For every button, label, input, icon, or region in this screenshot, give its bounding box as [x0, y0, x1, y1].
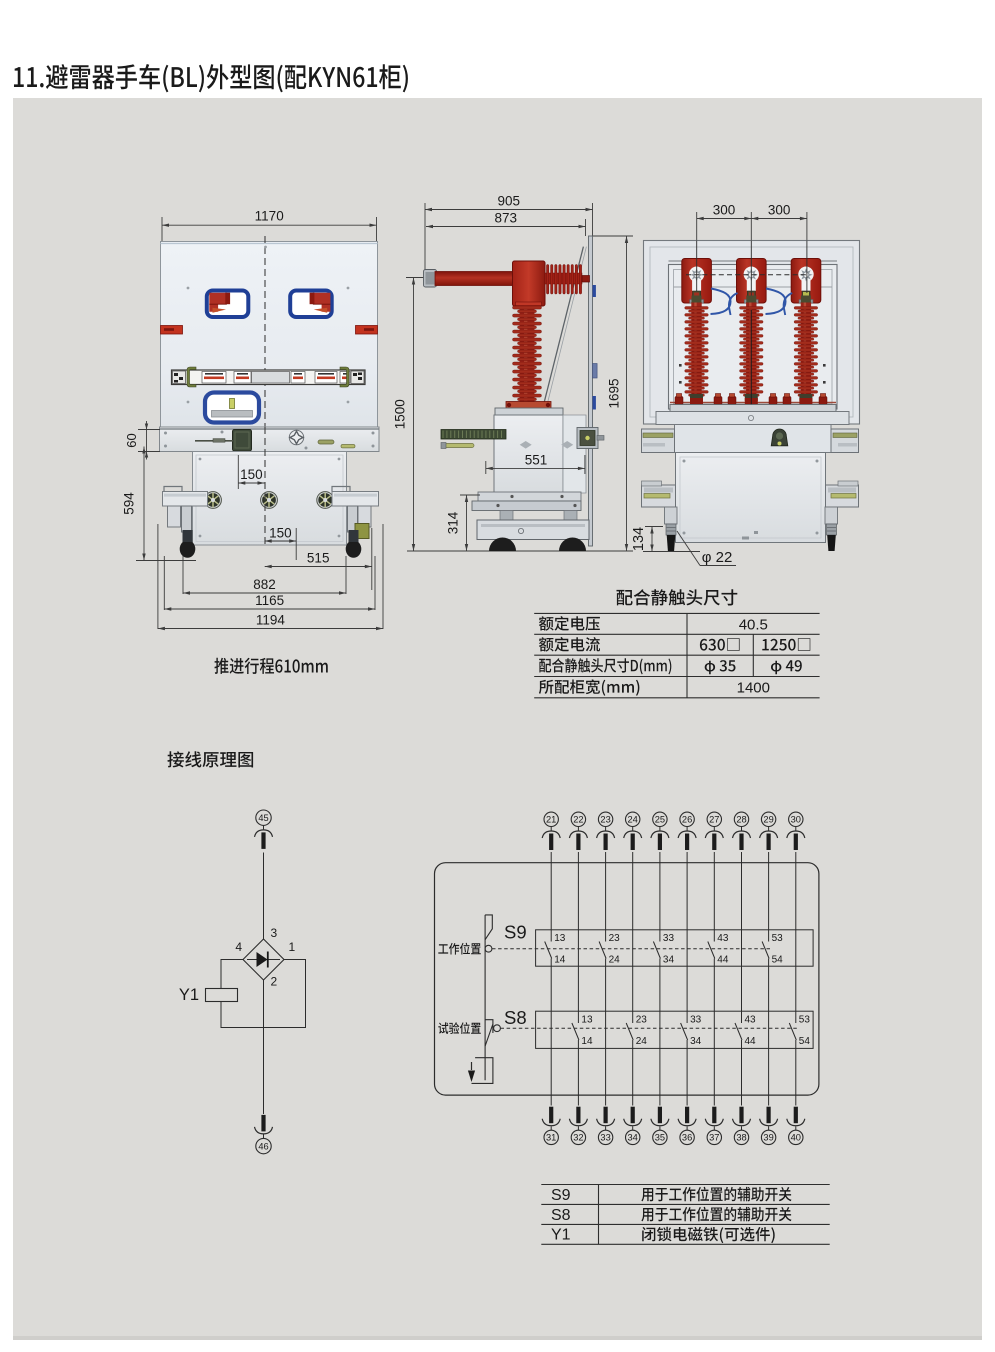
svg-text:30: 30 [791, 815, 801, 825]
svg-text:2: 2 [271, 975, 278, 989]
svg-text:34: 34 [628, 1133, 638, 1143]
svg-text:24: 24 [609, 955, 621, 966]
svg-text:53: 53 [772, 933, 784, 944]
svg-text:28: 28 [736, 815, 746, 825]
svg-text:S8: S8 [504, 1007, 527, 1028]
svg-text:25: 25 [655, 815, 665, 825]
svg-text:134: 134 [631, 527, 647, 551]
svg-text:1194: 1194 [256, 613, 286, 628]
svg-text:43: 43 [717, 933, 729, 944]
svg-text:39: 39 [763, 1133, 773, 1143]
svg-text:1170: 1170 [255, 209, 284, 224]
svg-text:1: 1 [289, 940, 296, 954]
svg-text:31: 31 [546, 1133, 556, 1143]
svg-text:24: 24 [636, 1036, 648, 1047]
svg-text:S8: S8 [551, 1207, 571, 1224]
svg-text:36: 36 [682, 1133, 692, 1143]
svg-text:150: 150 [269, 526, 292, 541]
svg-text:905: 905 [498, 194, 521, 209]
svg-text:40: 40 [791, 1133, 801, 1143]
svg-text:33: 33 [663, 933, 675, 944]
svg-text:S9: S9 [504, 922, 527, 943]
svg-text:4: 4 [235, 940, 242, 954]
svg-text:Y1: Y1 [179, 986, 199, 1004]
svg-text:13: 13 [554, 933, 566, 944]
svg-text:23: 23 [600, 815, 610, 825]
svg-text:882: 882 [253, 577, 276, 592]
svg-text:1400: 1400 [737, 680, 770, 697]
svg-text:φ 22: φ 22 [702, 549, 733, 566]
svg-text:38: 38 [736, 1133, 746, 1143]
svg-text:1165: 1165 [255, 593, 284, 608]
svg-text:29: 29 [763, 815, 773, 825]
svg-text:26: 26 [682, 815, 692, 825]
svg-text:22: 22 [573, 815, 583, 825]
svg-text:37: 37 [709, 1133, 719, 1143]
svg-text:300: 300 [768, 203, 791, 218]
svg-text:60: 60 [124, 433, 139, 447]
svg-text:35: 35 [655, 1133, 665, 1143]
svg-text:43: 43 [745, 1015, 757, 1026]
svg-text:33: 33 [690, 1015, 702, 1026]
svg-text:33: 33 [600, 1133, 610, 1143]
svg-text:1500: 1500 [393, 399, 408, 429]
svg-text:14: 14 [581, 1036, 593, 1047]
svg-text:54: 54 [799, 1036, 811, 1047]
svg-text:Y1: Y1 [551, 1227, 571, 1244]
svg-text:44: 44 [717, 955, 729, 966]
svg-text:300: 300 [713, 203, 736, 218]
svg-text:53: 53 [799, 1015, 811, 1026]
svg-text:14: 14 [554, 955, 566, 966]
svg-text:40.5: 40.5 [739, 616, 768, 633]
svg-text:34: 34 [663, 955, 675, 966]
svg-text:21: 21 [546, 815, 556, 825]
svg-text:23: 23 [636, 1015, 648, 1026]
svg-text:32: 32 [573, 1133, 583, 1143]
svg-text:1695: 1695 [607, 378, 622, 408]
svg-text:23: 23 [609, 933, 621, 944]
svg-text:150: 150 [240, 467, 263, 482]
svg-text:873: 873 [495, 211, 518, 226]
svg-text:314: 314 [446, 511, 461, 534]
svg-text:3: 3 [271, 926, 278, 940]
svg-text:27: 27 [709, 815, 719, 825]
svg-text:54: 54 [772, 955, 784, 966]
svg-text:46: 46 [258, 1141, 268, 1151]
svg-text:45: 45 [258, 813, 268, 823]
svg-text:44: 44 [745, 1036, 757, 1047]
svg-text:24: 24 [628, 815, 638, 825]
svg-text:S9: S9 [551, 1187, 571, 1204]
svg-text:34: 34 [690, 1036, 702, 1047]
svg-text:594: 594 [122, 492, 137, 515]
svg-text:515: 515 [307, 551, 330, 566]
svg-text:551: 551 [525, 453, 548, 468]
svg-text:13: 13 [581, 1015, 593, 1026]
